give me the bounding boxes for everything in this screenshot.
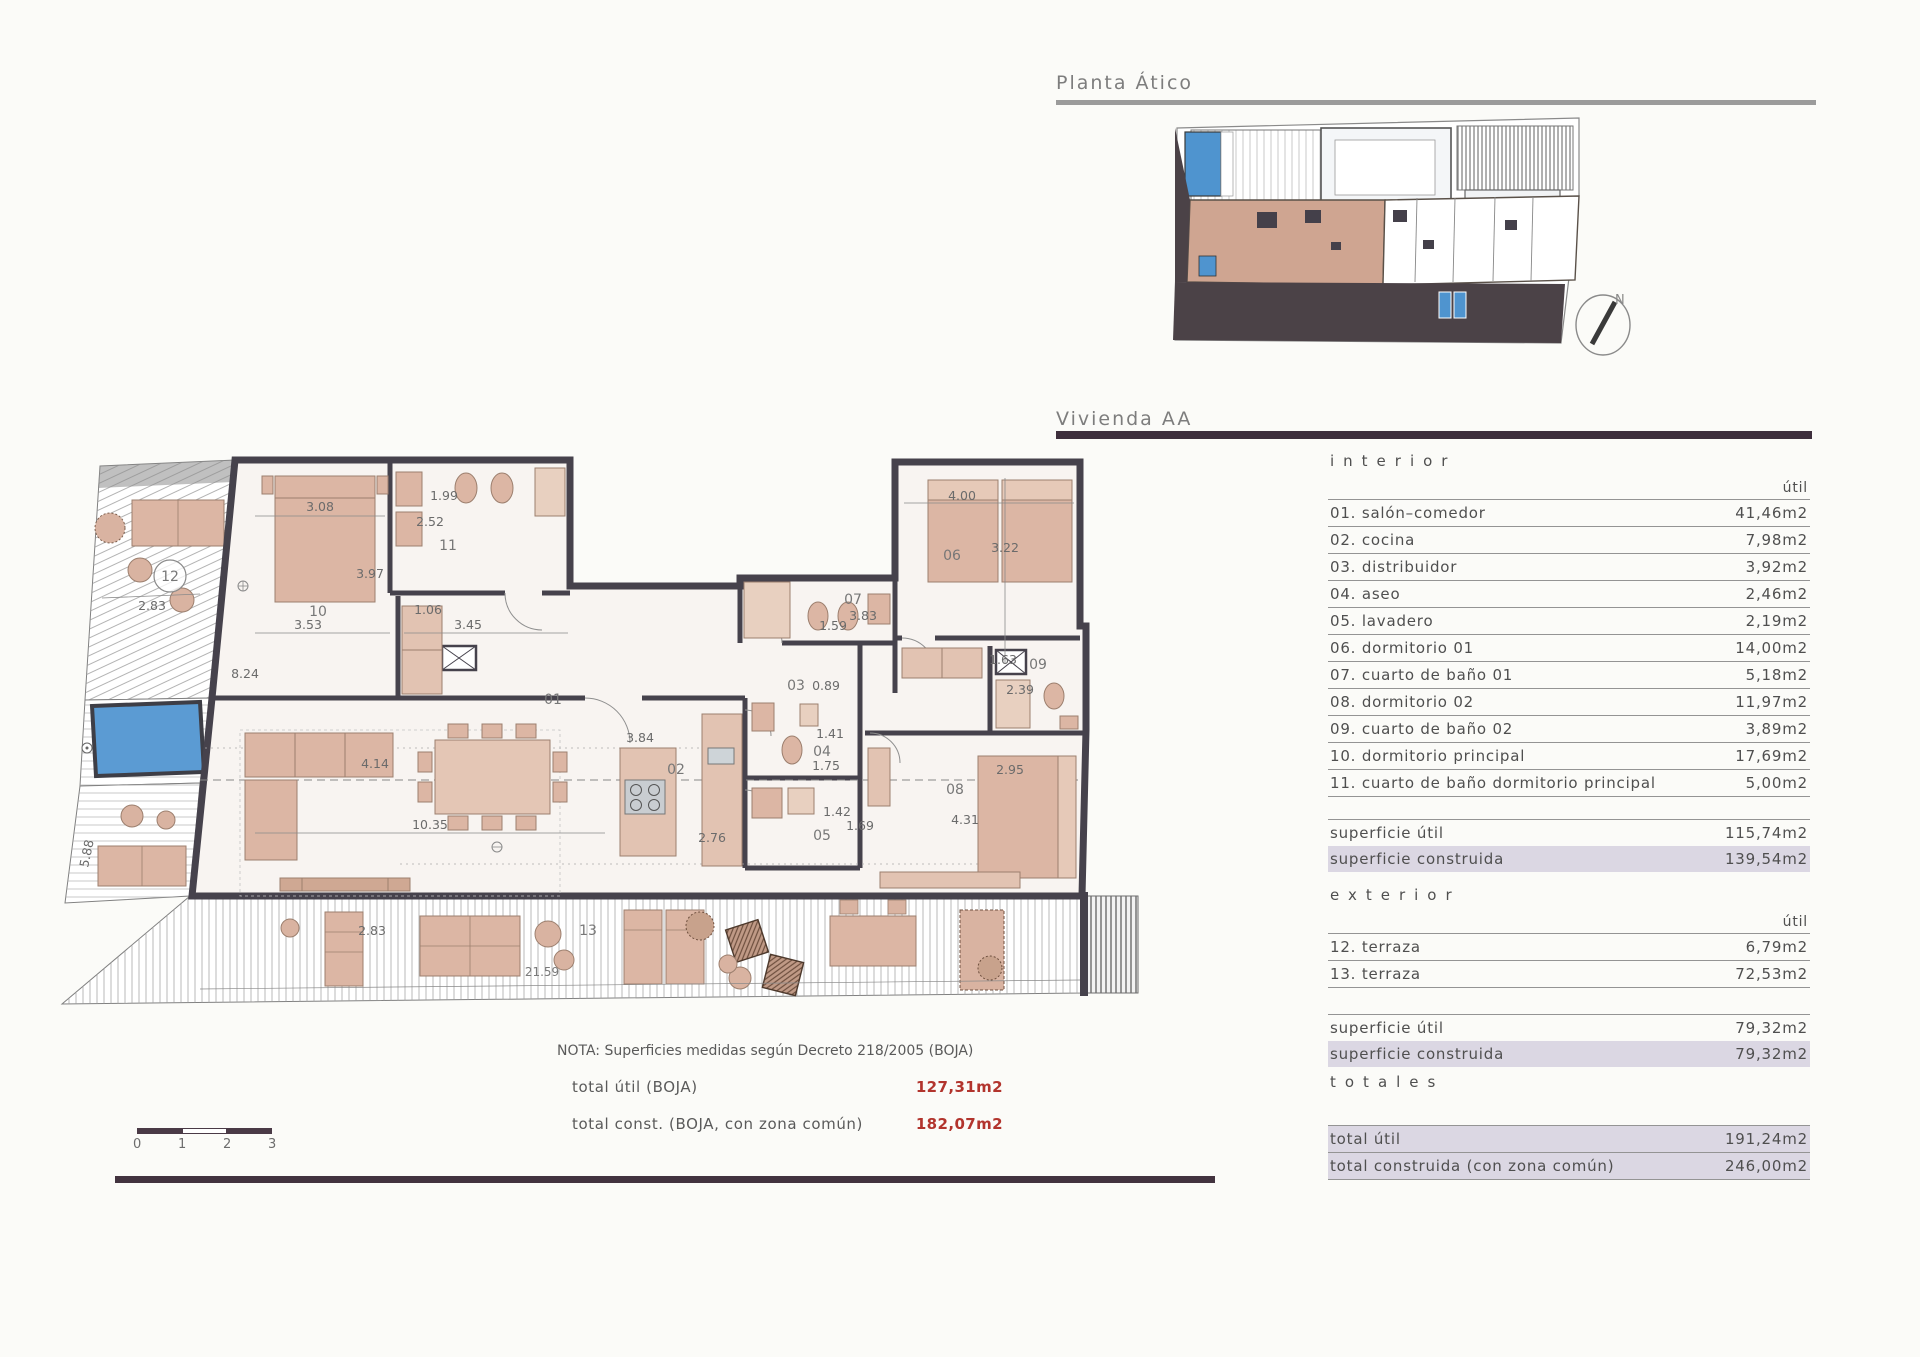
mini-terrace-band: [1173, 282, 1565, 343]
row-value: 17,69m2: [1735, 747, 1808, 765]
room-label-13: 13: [579, 923, 597, 939]
room-label-09: 09: [1029, 657, 1047, 673]
plan-sheet: Planta Ático: [0, 0, 1920, 1357]
row-label: superficie construida: [1330, 850, 1504, 868]
scale-label: 1: [178, 1137, 186, 1152]
areas-table: interior útil 01. salón–comedor41,46m2 0…: [1328, 452, 1810, 1180]
vivienda-title: Vivienda AA: [1056, 408, 1192, 430]
terrace-13: 2.83 13 21.59: [62, 896, 1082, 1004]
table-row: 12. terraza6,79m2: [1328, 933, 1810, 960]
bottom-rule: [115, 1176, 1215, 1183]
row-value: 3,89m2: [1746, 720, 1808, 738]
room-label-05: 05: [813, 828, 831, 844]
dim: 4.31: [951, 812, 979, 827]
room-label-01: 01: [544, 692, 562, 708]
round-table: [128, 558, 152, 582]
dim: 3.97: [356, 566, 384, 581]
dim: 0.89: [812, 678, 840, 693]
wicker-chair: [762, 954, 803, 995]
table-row: 05. lavadero2,19m2: [1328, 607, 1810, 634]
table-row: 08. dormitorio 0211,97m2: [1328, 688, 1810, 715]
scale-label: 2: [223, 1137, 231, 1152]
row-value: 72,53m2: [1735, 965, 1808, 983]
scale-label: 0: [133, 1137, 141, 1152]
planta-title: Planta Ático: [1056, 72, 1193, 94]
row-label: 10. dormitorio principal: [1330, 747, 1525, 765]
table-row: 10. dormitorio principal17,69m2: [1328, 742, 1810, 769]
boja-value: 182,07m2: [916, 1115, 1003, 1133]
row-label: 07. cuarto de baño 01: [1330, 666, 1513, 684]
dim: 2.76: [698, 830, 726, 845]
table-row: 13. terraza72,53m2: [1328, 960, 1810, 988]
superficie-construida-row: superficie construida139,54m2: [1328, 846, 1810, 872]
dim: 2.83: [358, 923, 386, 938]
scale-label: 3: [268, 1137, 276, 1152]
util-header: útil: [1328, 908, 1810, 933]
table-row: 04. aseo2,46m2: [1328, 580, 1810, 607]
dim: 1.06: [414, 602, 442, 617]
row-label: total construida (con zona común): [1330, 1157, 1614, 1175]
table-row: 03. distribuidor3,92m2: [1328, 553, 1810, 580]
north-label: N: [1615, 293, 1625, 308]
boja-value: 127,31m2: [916, 1078, 1003, 1096]
mini-unit-highlight: [1187, 200, 1385, 285]
row-label: 05. lavadero: [1330, 612, 1433, 630]
dim: 4.14: [361, 756, 389, 771]
row-value: 2,46m2: [1746, 585, 1808, 603]
building-outline: [1173, 118, 1579, 343]
table-row: 06. dormitorio 0114,00m2: [1328, 634, 1810, 661]
row-value: 6,79m2: [1746, 938, 1808, 956]
row-value: 246,00m2: [1725, 1157, 1808, 1175]
dim: 2.83: [138, 598, 166, 613]
row-value: 115,74m2: [1725, 824, 1808, 842]
superficie-util-row: superficie útil115,74m2: [1328, 819, 1810, 846]
vivienda-rule: [1056, 431, 1812, 439]
north-arrow: N: [1576, 293, 1630, 355]
dim: 2.52: [416, 514, 444, 529]
floorplan: 12 2.83 5.88: [40, 448, 1140, 1013]
row-label: superficie útil: [1330, 1019, 1444, 1037]
overview-miniplan: N: [1165, 100, 1825, 370]
row-label: 11. cuarto de baño dormitorio principal: [1330, 774, 1656, 792]
row-label: 01. salón–comedor: [1330, 504, 1486, 522]
row-label: 03. distribuidor: [1330, 558, 1457, 576]
table-row: 01. salón–comedor41,46m2: [1328, 499, 1810, 526]
row-label: 02. cocina: [1330, 531, 1415, 549]
table-row: 11. cuarto de baño dormitorio principal5…: [1328, 769, 1810, 797]
room-label-06: 06: [943, 548, 961, 564]
superficie-construida-row: superficie construida79,32m2: [1328, 1041, 1810, 1067]
lower-left-deck: 5.88: [65, 783, 200, 903]
table-row: 07. cuarto de baño 015,18m2: [1328, 661, 1810, 688]
boja-label: total útil (BOJA): [572, 1078, 698, 1096]
dim: 1.63: [989, 652, 1017, 667]
dim: 3.84: [626, 730, 654, 745]
dim: 3.53: [294, 617, 322, 632]
dim: 3.45: [454, 617, 482, 632]
pool: [92, 702, 204, 776]
dim: 1.42: [823, 804, 851, 819]
nota-text: NOTA: Superficies medidas según Decreto …: [557, 1043, 1003, 1059]
dim: 21.59: [525, 965, 559, 979]
row-value: 79,32m2: [1735, 1019, 1808, 1037]
table-row: 09. cuarto de baño 023,89m2: [1328, 715, 1810, 742]
room-label-08: 08: [946, 782, 964, 798]
dim: 4.00: [948, 488, 976, 503]
dim: 3.08: [306, 499, 334, 514]
exterior-header: exterior: [1330, 886, 1810, 904]
row-value: 2,19m2: [1746, 612, 1808, 630]
room-label-07: 07: [844, 592, 862, 608]
dim: 1.59: [819, 618, 847, 633]
row-value: 7,98m2: [1746, 531, 1808, 549]
row-value: 14,00m2: [1735, 639, 1808, 657]
row-value: 191,24m2: [1725, 1130, 1808, 1148]
dim: 3.83: [849, 608, 877, 623]
row-label: 13. terraza: [1330, 965, 1421, 983]
room-label-11: 11: [439, 538, 457, 554]
row-value: 11,97m2: [1735, 693, 1808, 711]
row-label: 06. dormitorio 01: [1330, 639, 1474, 657]
mini-pool: [1185, 132, 1221, 196]
dim: 1.41: [816, 726, 844, 741]
plant: [686, 912, 714, 940]
plant: [95, 513, 125, 543]
row-label: 08. dormitorio 02: [1330, 693, 1474, 711]
row-label: superficie útil: [1330, 824, 1444, 842]
util-header: útil: [1328, 474, 1810, 499]
row-value: 3,92m2: [1746, 558, 1808, 576]
row-value: 5,18m2: [1746, 666, 1808, 684]
interior-header: interior: [1330, 452, 1810, 470]
apartment: 3.08 1.99 2.52 3.97 11 10 3.53 1.06 3.45…: [192, 460, 1086, 896]
terrace-rug: [960, 910, 1004, 990]
room-label-02: 02: [667, 762, 685, 778]
row-value: 41,46m2: [1735, 504, 1808, 522]
total-util-row: total útil191,24m2: [1328, 1125, 1810, 1152]
totales-header: totales: [1330, 1073, 1810, 1091]
table-row: 02. cocina7,98m2: [1328, 526, 1810, 553]
dim: 3.22: [991, 540, 1019, 555]
planta-header: Planta Ático: [1056, 72, 1193, 94]
pool-deck: [80, 698, 212, 786]
dim: 2.39: [1006, 682, 1034, 697]
superficie-util-row: superficie útil79,32m2: [1328, 1014, 1810, 1041]
row-label: 12. terraza: [1330, 938, 1421, 956]
boja-row: total const. (BOJA, con zona común) 182,…: [557, 1115, 1003, 1133]
boja-row: total útil (BOJA) 127,31m2: [557, 1078, 1003, 1096]
row-value: 5,00m2: [1746, 774, 1808, 792]
room-label-12: 12: [161, 569, 179, 585]
dim: 10.35: [412, 817, 448, 832]
dim: 2.95: [996, 762, 1024, 777]
dim: 1.99: [430, 488, 458, 503]
vivienda-header: Vivienda AA: [1056, 408, 1192, 430]
boja-note: NOTA: Superficies medidas según Decreto …: [557, 1043, 1003, 1133]
row-label: superficie construida: [1330, 1045, 1504, 1063]
total-construida-row: total construida (con zona común)246,00m…: [1328, 1152, 1810, 1180]
boja-label: total const. (BOJA, con zona común): [572, 1115, 863, 1133]
dim: 1.75: [812, 758, 840, 773]
row-value: 79,32m2: [1735, 1045, 1808, 1063]
dim: 8.24: [231, 666, 259, 681]
row-label: 09. cuarto de baño 02: [1330, 720, 1513, 738]
row-label: total útil: [1330, 1130, 1401, 1148]
row-value: 139,54m2: [1725, 850, 1808, 868]
dim: 1.69: [846, 818, 874, 833]
neighbour-strip: [1080, 892, 1138, 996]
row-label: 04. aseo: [1330, 585, 1400, 603]
room-label-03: 03: [787, 678, 805, 694]
